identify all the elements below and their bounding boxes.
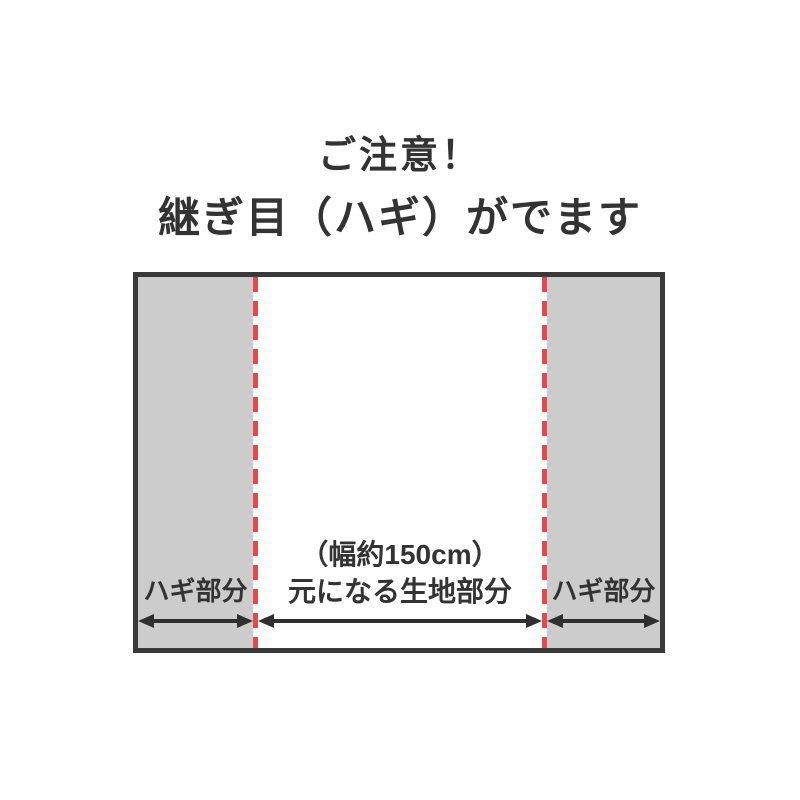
arrow-shaft	[274, 619, 526, 623]
fabric-seam-diagram: ハギ部分 （幅約150cm） 元になる生地部分 ハギ部分	[133, 272, 665, 653]
arrowhead-right-icon	[644, 614, 660, 628]
arrowhead-left-icon	[138, 614, 154, 628]
width-arrow-center	[258, 613, 542, 628]
width-arrow-left	[138, 613, 253, 628]
arrowhead-right-icon	[237, 614, 253, 628]
notice-subtitle: 継ぎ目（ハギ）がでます	[0, 184, 800, 245]
arrowhead-left-icon	[547, 614, 563, 628]
arrow-shaft	[563, 619, 644, 623]
hagi-label-right: ハギ部分	[547, 571, 660, 608]
arrow-shaft	[154, 619, 237, 623]
base-fabric-label: 元になる生地部分	[258, 573, 542, 610]
arrowhead-left-icon	[258, 614, 274, 628]
width-arrow-right	[547, 613, 660, 628]
fabric-width-note: （幅約150cm）	[258, 536, 542, 573]
hagi-label-left: ハギ部分	[138, 571, 253, 608]
notice-page: ご注意！ 継ぎ目（ハギ）がでます ハギ部分 （幅約150cm） 元になる生地部分…	[0, 0, 800, 800]
notice-title: ご注意！	[0, 124, 800, 179]
arrowhead-right-icon	[526, 614, 542, 628]
base-fabric-labels: （幅約150cm） 元になる生地部分	[258, 536, 542, 610]
